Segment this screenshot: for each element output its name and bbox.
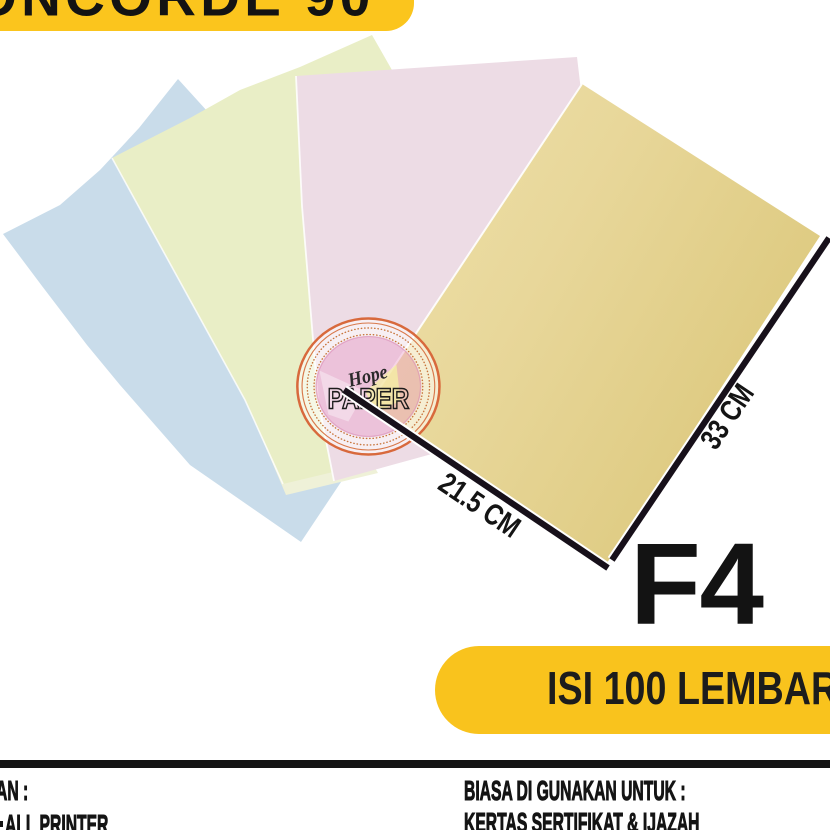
- svg-text:F4: F4: [630, 519, 764, 649]
- svg-text:CONCORDE 90: CONCORDE 90: [0, 0, 375, 28]
- svg-text:ISI 100 LEMBAR: ISI 100 LEMBAR: [547, 662, 830, 713]
